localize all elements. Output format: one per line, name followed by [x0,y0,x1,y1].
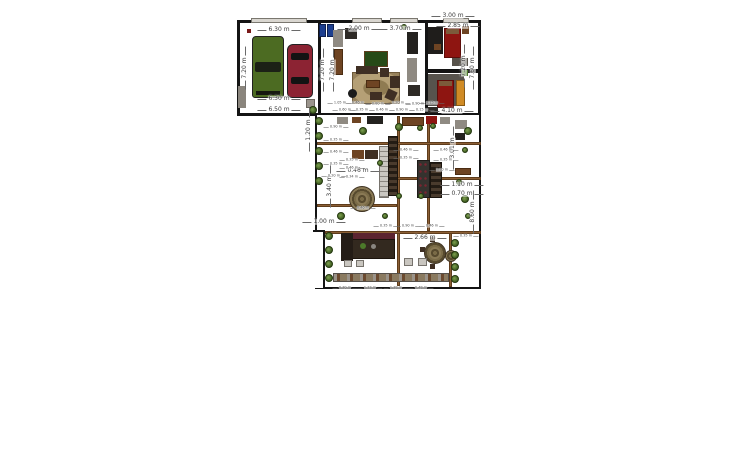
desk-chair[interactable] [434,44,441,50]
plant-icon[interactable] [315,117,323,125]
dimension-label-small: 1.05 m [334,101,346,104]
dimension-label-small: 0.35 m [380,224,392,227]
dimension-label-small: 0.46 m [346,166,358,169]
bed-lower-pillow[interactable] [439,81,452,86]
armchair-2[interactable] [370,92,382,100]
kitchen-tall-unit[interactable] [341,233,353,261]
wall-notch-horizontal [313,230,325,232]
dimension-label: 6.30 m [268,27,289,33]
plant-icon[interactable] [309,106,317,114]
dimension-label-small: 0.90 m [396,108,408,111]
dining-chair-3[interactable] [430,264,435,269]
dimension-label-small: 0.46 m [352,101,364,104]
dimension-label-small: 0.35 m [330,138,342,141]
storage-box-1[interactable] [404,258,413,266]
dimension-label-small: 1.10 m [436,168,448,171]
plant-icon[interactable] [315,147,323,155]
plant-icon[interactable] [417,125,423,131]
dimension-label: 8.60 m [470,201,476,222]
window-living-top-1[interactable] [352,18,382,23]
dimension-label-small: 0.34 m [346,175,358,178]
dimension-label-small: 0.80 m [372,102,384,105]
dimension-label-small: 0.35 m [346,158,358,161]
console-dark[interactable] [367,116,383,124]
coffee-table[interactable] [366,80,380,88]
media-unit-tall[interactable] [407,32,418,54]
dimension-label: 6.30 m [268,96,289,102]
plant-icon[interactable] [396,193,402,199]
blue-bin-1[interactable] [319,24,326,37]
dimension-label-small: 4.15 m [426,101,438,104]
plant-icon[interactable] [451,251,459,259]
plant-icon[interactable] [451,239,459,247]
dimension-label-small: 0.46 m [440,148,452,151]
plant-icon[interactable] [451,263,459,271]
plant-icon[interactable] [325,260,333,268]
window-living-top-2[interactable] [390,18,418,23]
plant-icon[interactable] [382,213,388,219]
dimension-label-small: 0.35 m [356,108,368,111]
plant-icon[interactable] [315,132,323,140]
dimension-label-small: 0.90 m [402,224,414,227]
sofa-right[interactable] [390,76,400,88]
plant-icon[interactable] [377,160,383,166]
dimension-label: 1.10 m [451,182,472,188]
dimension-label: 4.10 m [441,108,462,114]
plant-icon[interactable] [337,212,345,220]
plant-icon[interactable] [451,275,459,283]
plant-icon[interactable] [359,127,367,135]
sofa-top[interactable] [356,66,378,74]
dimension-label-small: 1.33 m [364,286,376,289]
dimension-label: 7.20 m [330,59,336,80]
dimension-label-small: 0.46 m [376,108,388,111]
storage-box-2[interactable] [418,258,427,266]
dimension-label: 3.00 m [442,13,463,19]
plant-icon[interactable] [395,123,403,131]
smoke-detector[interactable] [247,29,251,33]
hall-cabinet[interactable] [333,30,343,47]
plant-icon[interactable] [315,162,323,170]
appliance-2[interactable] [356,260,364,267]
dining-round-rug[interactable] [424,242,446,264]
plant-icon[interactable] [325,232,333,240]
dimension-label-small: 0.35 m [440,158,452,161]
sedan-car[interactable] [287,44,313,98]
dimension-label-small: 0.20 m [328,174,340,177]
dimension-label-small: 0.15 m [416,108,428,111]
appliance-1[interactable] [344,260,352,267]
dimension-label: 2.66 m [414,235,435,241]
dimension-label-small: 0.35 m [400,156,412,159]
dimension-label: 3.40 m [327,175,333,196]
wall-picture[interactable] [364,51,388,67]
plant-icon[interactable] [430,123,436,129]
dimension-label: 2.85 m [447,23,468,29]
dimension-label: 7.60 m [470,57,476,78]
window-garage-top[interactable] [251,18,307,23]
dimension-label: 7.20 m [320,59,326,80]
dimension-label: 1.00 m [313,219,334,225]
dimension-label-small: 0.35 m [330,162,342,165]
floor-plan-canvas[interactable]: 6.30 m7.20 m6.30 m6.50 m7.20 m7.20 m2.00… [0,0,750,450]
side-table-2[interactable] [365,150,378,159]
dimension-label-small: 0.46 m [330,150,342,153]
tv-console[interactable] [408,85,420,96]
dimension-label-small: 0.30 m [339,286,351,289]
dimension-label-small: 0.90 m [330,125,342,128]
dimension-label: 0.70 m [451,191,472,197]
dimension-label: 2.00 m [348,26,369,32]
dimension-label: 7.20 m [242,57,248,78]
dimension-label: 7.20 m [461,55,467,76]
cabinet-right-2[interactable] [455,133,465,140]
stone-wall-1[interactable] [388,136,398,196]
dimension-label-small: 0.48 m [415,286,427,289]
bench-right[interactable] [455,168,471,175]
dimension-label-small: 0.46 m [426,224,438,227]
pickup-truck[interactable] [252,36,284,98]
bed-top-pillow[interactable] [446,29,459,34]
dimension-label-small: 0.46 m [357,206,369,209]
plant-icon[interactable] [315,177,323,185]
plant-icon[interactable] [462,147,468,153]
dimension-label-small: 0.35 m [460,234,472,237]
dimension-label: 1.20 m [306,119,312,140]
shelf-gray[interactable] [407,58,417,82]
gray-cabinet-2[interactable] [440,117,450,124]
dimension-label: 6.50 m [268,107,289,113]
dimension-label: 3.70 m [389,26,410,32]
dimension-label-small: 0.20 m [392,101,404,104]
kitchen-pot[interactable] [371,244,376,249]
pergola-beam-h1[interactable] [317,142,481,145]
beanbag[interactable] [348,89,357,98]
dimension-label-small: 1.38 m [390,286,402,289]
plant-icon[interactable] [325,246,333,254]
dining-chair-1[interactable] [420,247,425,252]
plant-icon[interactable] [325,274,333,282]
fruit-bowl[interactable] [360,243,366,249]
sideboard-1[interactable] [337,117,348,124]
sideboard-2[interactable] [352,117,361,123]
sofa-corner[interactable] [380,68,389,77]
dimension-label-small: 0.46 m [400,148,412,151]
terrace-railing[interactable] [333,273,449,282]
plant-icon[interactable] [464,127,472,135]
plant-icon[interactable] [418,193,424,199]
